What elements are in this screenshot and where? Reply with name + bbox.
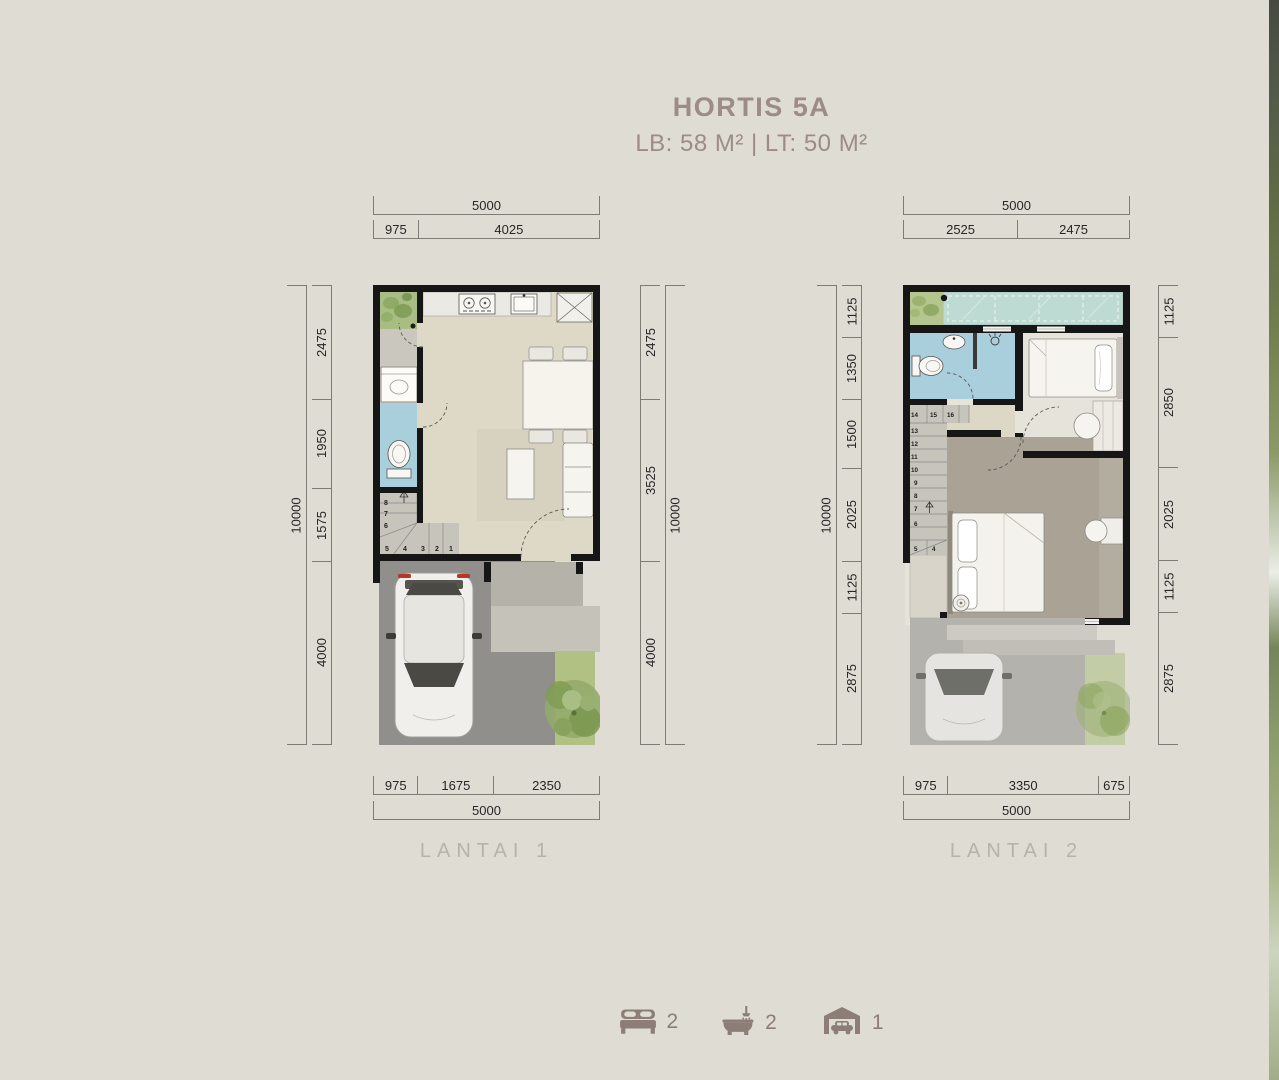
dim-endtick [842, 744, 862, 745]
dim-floor2-top-segments: 25252475 [903, 220, 1130, 239]
floor-plan-lantai-1: 1 2 3 4 5 6 7 8 [373, 285, 600, 745]
stair-number: 15 [930, 412, 938, 419]
legend-garage: 1 [821, 1005, 884, 1035]
dim-segment: 1125 [1158, 560, 1178, 612]
dim-floor1-top-total: 5000 [373, 196, 600, 215]
dim-floor1-right-segments: 247535254000 [640, 285, 660, 745]
dim-segment: 1125 [842, 561, 862, 613]
legend-bathrooms: 2 [722, 1005, 777, 1035]
dim-segment: 1350 [842, 337, 862, 399]
dim-segment: 975 [373, 220, 418, 239]
dim-segment: 975 [373, 776, 417, 795]
stair-number: 11 [911, 454, 918, 461]
stair-number: 9 [914, 480, 918, 487]
dim-segment: 2475 [640, 285, 660, 399]
carport-below [910, 618, 1130, 745]
side-table [953, 595, 969, 611]
dim-segment: 4025 [418, 220, 599, 239]
dim-floor1-right-total: 10000 [665, 285, 685, 745]
stair-number: 6 [384, 523, 388, 530]
dim-endtick [599, 220, 600, 239]
dim-endtick [1129, 776, 1130, 795]
stair-number: 2 [435, 546, 439, 553]
glass-canopy [943, 292, 1123, 325]
dim-segment: 3525 [640, 399, 660, 561]
stair-number: 5 [914, 546, 918, 553]
bathroom-count: 2 [765, 1012, 777, 1035]
dim-segment: 1950 [312, 399, 332, 489]
dim-segment: 10000 [665, 285, 685, 744]
dim-endtick [1158, 744, 1178, 745]
floor1-label: LANTAI 1 [373, 840, 600, 863]
stair-number: 4 [403, 546, 407, 553]
stair-number: 16 [947, 412, 955, 419]
dim-segment: 975 [903, 776, 947, 795]
stair-number: 10 [911, 467, 919, 474]
bed-icon [619, 1006, 657, 1034]
dim-floor2-bottom-total: 5000 [903, 801, 1130, 820]
dim-segment: 5000 [373, 801, 599, 820]
bathroom-1 [380, 403, 417, 487]
dim-segment: 2875 [1158, 612, 1178, 744]
stair-number: 12 [911, 441, 919, 448]
dim-segment: 2525 [903, 220, 1017, 239]
plan-header: HORTIS 5A LB: 58 M² | LT: 50 M² [373, 92, 1130, 158]
shaft-void [557, 293, 592, 322]
dining-set [523, 347, 593, 443]
floorplan-sheet: HORTIS 5A LB: 58 M² | LT: 50 M² 5000 975… [0, 0, 1279, 1080]
garage-icon [821, 1005, 863, 1035]
dim-segment: 3350 [947, 776, 1097, 795]
coffee-table [507, 449, 534, 499]
dim-segment: 4000 [312, 561, 332, 744]
bath-icon [722, 1005, 756, 1035]
sink-icon [511, 294, 537, 314]
dim-endtick [599, 196, 600, 215]
dim-endtick [1129, 196, 1130, 215]
page-title: HORTIS 5A [373, 92, 1130, 123]
stair-number: 5 [385, 546, 389, 553]
dim-segment: 1575 [312, 488, 332, 561]
washer [381, 367, 417, 402]
dresser [1085, 518, 1123, 544]
floor1-drawing: 1 2 3 4 5 6 7 8 [373, 285, 600, 745]
dim-endtick [287, 744, 307, 745]
floor-plan-lantai-2: 4 5 6 7 8 9 10 11 12 13 14 15 16 [903, 285, 1130, 745]
dim-floor2-left-total: 10000 [817, 285, 837, 745]
dim-floor2-bottom-segments: 9753350675 [903, 776, 1130, 795]
dim-segment: 2350 [493, 776, 599, 795]
garage-count: 1 [872, 1012, 884, 1035]
stair-number: 7 [384, 511, 388, 518]
stair-number: 8 [384, 500, 388, 507]
dim-endtick [599, 776, 600, 795]
dim-segment: 4000 [640, 561, 660, 744]
sofa [563, 443, 593, 517]
basin-icon [943, 335, 965, 349]
stair-number: 6 [914, 521, 918, 528]
dim-segment: 1125 [842, 285, 862, 337]
car-below [916, 653, 1012, 741]
dim-segment: 2025 [1158, 467, 1178, 560]
stair-number: 7 [914, 506, 918, 513]
dim-floor1-left-segments: 2475195015754000 [312, 285, 332, 745]
floor2-label: LANTAI 2 [903, 840, 1130, 863]
dim-floor2-right-segments: 11252850202511252875 [1158, 285, 1178, 745]
dim-segment: 5000 [373, 196, 599, 215]
dim-floor2-left-segments: 112513501500202511252875 [842, 285, 862, 745]
features-legend: 2 2 [373, 1005, 1130, 1035]
bedroom-count: 2 [666, 1011, 678, 1034]
dim-segment: 5000 [903, 801, 1129, 820]
bathroom-2 [910, 332, 1015, 399]
dim-segment: 2875 [842, 613, 862, 744]
area-subtitle: LB: 58 M² | LT: 50 M² [373, 130, 1130, 158]
stair-number: 13 [911, 428, 919, 435]
toilet-icon [912, 356, 943, 376]
stair-number: 4 [932, 546, 936, 553]
dim-endtick [1129, 220, 1130, 239]
dim-segment: 675 [1098, 776, 1129, 795]
dim-endtick [599, 801, 600, 820]
tree-below [1076, 681, 1130, 737]
dim-segment: 1500 [842, 399, 862, 468]
stair-number: 8 [914, 493, 918, 500]
dim-segment: 2475 [1017, 220, 1129, 239]
dim-floor1-left-total: 10000 [287, 285, 307, 745]
dim-segment: 10000 [817, 285, 837, 744]
dim-endtick [640, 744, 660, 745]
toilet-icon [387, 441, 411, 479]
dim-segment: 10000 [287, 285, 307, 744]
dim-endtick [817, 744, 837, 745]
dim-floor1-bottom-total: 5000 [373, 801, 600, 820]
dim-endtick [312, 744, 332, 745]
dim-segment: 1125 [1158, 285, 1178, 337]
stair-number: 14 [911, 412, 919, 419]
dim-endtick [1129, 801, 1130, 820]
stove-icon [459, 294, 495, 314]
utility-area [380, 329, 417, 366]
photo-edge-strip [1269, 0, 1279, 1080]
void-balcony [910, 555, 947, 618]
legend-bedrooms: 2 [619, 1006, 678, 1034]
car-top-view [386, 573, 482, 737]
dim-segment: 5000 [903, 196, 1129, 215]
planter-upper [910, 292, 947, 325]
planter-front [380, 292, 417, 329]
dim-segment: 1675 [417, 776, 493, 795]
stair-number: 1 [449, 546, 453, 553]
bedroom1-bed [1029, 337, 1123, 399]
floor2-drawing: 4 5 6 7 8 9 10 11 12 13 14 15 16 [903, 285, 1130, 745]
dim-segment: 2025 [842, 468, 862, 561]
dim-floor1-bottom-segments: 97516752350 [373, 776, 600, 795]
stair-number: 3 [421, 546, 425, 553]
dim-segment: 2850 [1158, 337, 1178, 467]
dim-floor1-top-segments: 9754025 [373, 220, 600, 239]
dim-endtick [665, 744, 685, 745]
dim-floor2-top-total: 5000 [903, 196, 1130, 215]
dim-segment: 2475 [312, 285, 332, 399]
